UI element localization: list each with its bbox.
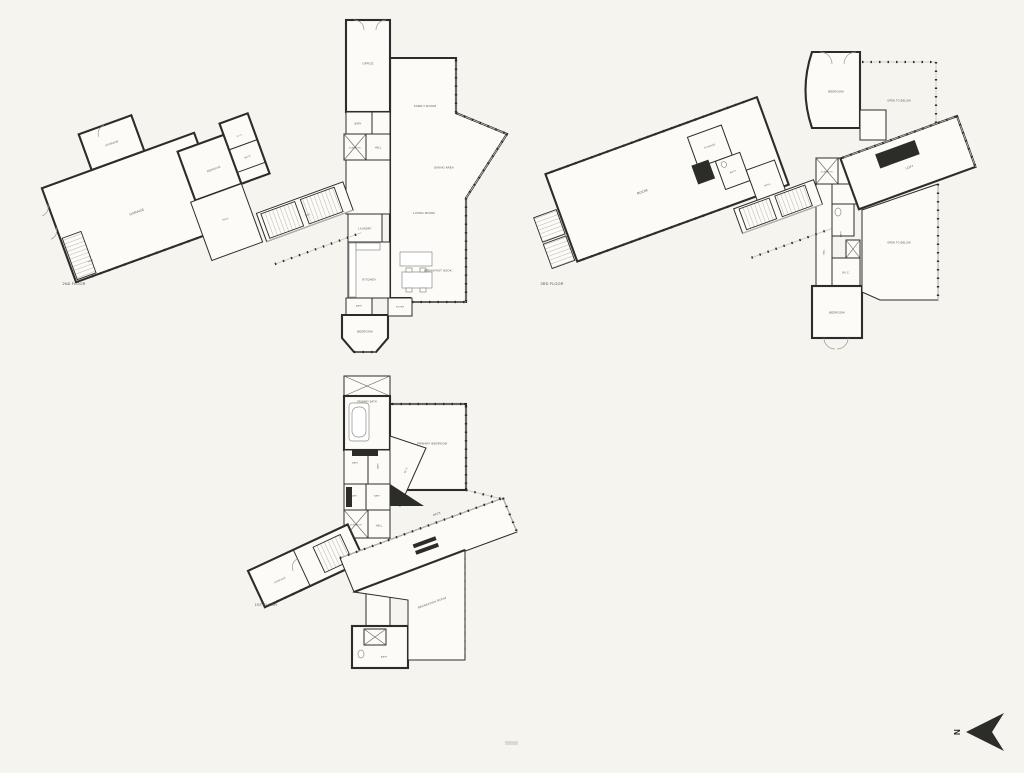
label-primary-bedroom: PRIMARY BEDROOM (417, 442, 448, 446)
label-foyer: FOYER (396, 307, 405, 309)
plan-second-floor: OFFICE BATH ELEVATOR HALL FAMILY ROOM DI… (20, 20, 507, 352)
vanity (352, 450, 378, 456)
room-bath-east (832, 204, 854, 236)
landing (346, 160, 390, 214)
room-closet-upper (372, 112, 390, 134)
label-deck: DECK (432, 510, 441, 517)
label-office: OFFICE (362, 62, 373, 66)
label-bedroom: BEDROOM (828, 90, 844, 94)
label-elevator: ELEVATOR (350, 524, 362, 527)
floor-label-first: 1ST FLOOR (255, 603, 277, 607)
second-floor-center-section: OFFICE BATH ELEVATOR HALL FAMILY ROOM DI… (342, 20, 507, 352)
label-laundry: LAUNDRY (358, 227, 372, 231)
label-hall: HALL (375, 147, 382, 150)
label-living-room: LIVING ROOM (413, 211, 435, 215)
label-bath: BATH (356, 305, 363, 308)
label-bath: BATH (840, 231, 843, 238)
breakfast-table (402, 272, 432, 288)
label-dining-area: DINING AREA (434, 166, 454, 170)
label-elevator: ELEVATOR (821, 171, 833, 174)
label-primary-bath: PRIMARY BATH (357, 401, 377, 404)
label-bath: BATH (355, 123, 362, 126)
label-breakfast-nook: BREAKFAST NOOK (424, 269, 452, 273)
kitchen-island (400, 252, 432, 266)
kitchen-counter (356, 243, 380, 250)
floorplan-canvas: OFFICE BATH ELEVATOR HALL FAMILY ROOM DI… (0, 0, 1024, 768)
label-elevator: ELEVATOR (349, 147, 361, 150)
label-bath: BATH (381, 656, 388, 659)
kitchen-counter (349, 243, 356, 297)
label-family-room: FAMILY ROOM (414, 104, 437, 108)
floor-label-third: 3RD FLOOR (540, 282, 563, 286)
third-floor-room-wing: ROOM STORAGE BATH HALL (521, 89, 831, 323)
stairs-bridge-lower (300, 187, 343, 224)
label-open-to-below: OPEN TO BELOW (887, 241, 911, 245)
room-office (346, 20, 390, 112)
plan-third-floor: BEDROOM OPEN TO BELOW ELEVATOR HALL BATH… (521, 52, 975, 349)
stairs-bridge-upper (739, 198, 777, 230)
label-kitchen: KITCHEN (362, 278, 375, 282)
north-arrow-icon (966, 713, 1004, 751)
watermark (505, 741, 518, 745)
compass: N (953, 713, 1004, 751)
label-wic: W.I.C. (842, 272, 850, 275)
label-bedroom: BEDROOM (357, 330, 373, 334)
label-bath: BATH (377, 463, 380, 469)
closet-east (860, 110, 886, 140)
label-bedroom: BEDROOM (829, 311, 845, 315)
label-bath: BATH (374, 495, 380, 498)
label-bath: BATH (351, 495, 357, 498)
label-hall: HALL (823, 248, 826, 255)
floor-label-second: 2ND FLOOR (62, 282, 85, 286)
floorplan-sheet: OFFICE BATH ELEVATOR HALL FAMILY ROOM DI… (0, 0, 1024, 768)
stairs-bridge-upper (261, 202, 304, 239)
compass-north-label: N (953, 729, 962, 735)
second-floor-garage-wing: GARAGE STORAGE BEDROOM W.I.C. BATH HALL … (20, 55, 361, 333)
label-bath: BATH (352, 462, 358, 465)
label-open-to-below: OPEN TO BELOW (887, 99, 911, 103)
label-hall: HALL (376, 525, 383, 528)
plan-first-floor: PRIMARY BATH PRIMARY BEDROOM W.I.C. BATH… (248, 376, 517, 668)
